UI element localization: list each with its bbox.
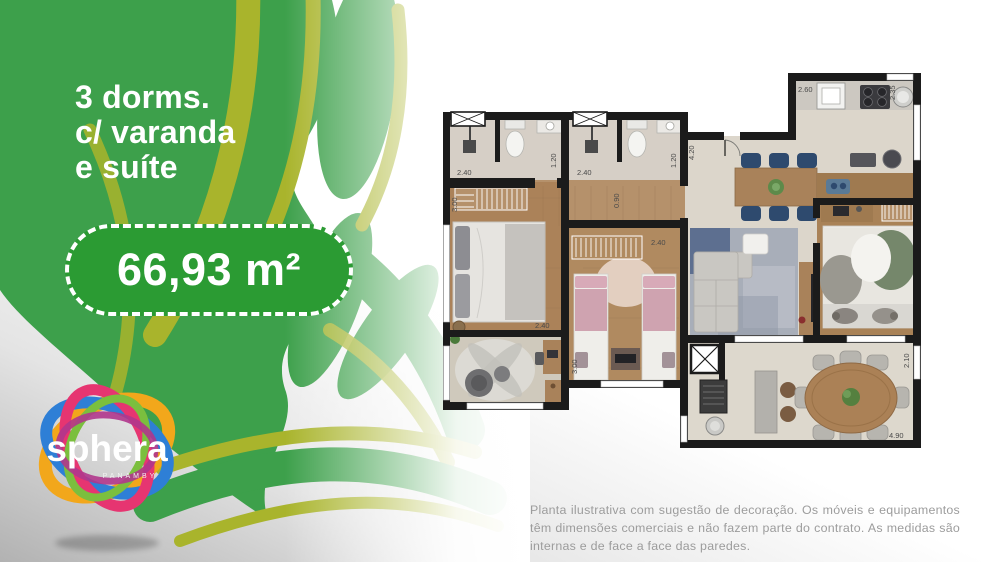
headline-line-2: c/ varanda [75, 115, 235, 150]
closet-icon [572, 236, 642, 259]
dim-label: 4.90 [889, 431, 904, 440]
living-room [690, 228, 815, 335]
suite-bedroom [820, 201, 916, 328]
window-icon [887, 74, 913, 80]
single-bed-icon [642, 274, 676, 380]
dim-label: 2.40 [457, 168, 472, 177]
stove-icon [860, 85, 890, 109]
dim-label: 2.10 [902, 353, 911, 368]
disclaimer: Planta ilustrativa com sugestão de decor… [530, 501, 960, 555]
service-door-icon [681, 416, 687, 442]
dim-label: 1.20 [549, 153, 558, 168]
counter-sink-icon [826, 179, 850, 194]
grill-icon [700, 380, 727, 413]
window-icon [914, 346, 920, 379]
disclaimer-line-2: têm dimensões comerciais e não fazem par… [530, 519, 960, 537]
logo-subtitle: PANAMBY [103, 473, 158, 480]
vase-icon [799, 317, 806, 324]
window-icon [914, 105, 920, 160]
dim-label: 3.00 [450, 197, 459, 212]
island-icon [755, 371, 777, 433]
shower-icon [585, 140, 598, 153]
dim-label: 1.20 [669, 153, 678, 168]
dim-label: 0.90 [612, 193, 621, 208]
logo-wordmark: sphera [46, 428, 168, 469]
dim-label: 3.00 [570, 359, 579, 374]
dim-label: 2.40 [651, 238, 666, 247]
area-value: 66,93 m² [117, 244, 301, 296]
flyer: 3 dorms. c/ varanda e suíte 66,93 m² sph… [0, 0, 1000, 562]
pot-icon [883, 150, 901, 168]
stool-icon [780, 382, 796, 398]
coffee-table-icon [743, 234, 768, 254]
dim-label: 4.20 [687, 145, 696, 160]
disclaimer-line-3: internas e de face a face das paredes. [530, 537, 960, 555]
window-icon [467, 403, 543, 409]
dim-label: 2.40 [577, 168, 592, 177]
single-bed-icon [574, 274, 608, 380]
desk-chair-icon [535, 352, 544, 365]
window-icon [601, 381, 663, 387]
headline: 3 dorms. c/ varanda e suíte [75, 80, 235, 185]
ottoman-icon [494, 366, 510, 382]
toilet-icon [506, 131, 524, 157]
toilet-icon [628, 131, 646, 157]
tv-icon [615, 354, 636, 363]
dim-label: 2.40 [535, 321, 550, 330]
sliding-door-icon [735, 336, 803, 342]
double-bed-icon [820, 226, 916, 328]
stool-icon [780, 406, 796, 422]
floor-plan: 2.40 1.20 2.40 1.20 3.00 0.90 2.40 2.40 … [443, 68, 945, 480]
cabinet-icon [545, 380, 562, 402]
logo-shadow [55, 535, 159, 551]
area-badge: 66,93 m² [65, 224, 353, 316]
window-icon [444, 225, 450, 322]
shower-icon [463, 140, 476, 153]
sphera-logo: sphera PANAMBY [22, 352, 192, 557]
sink-icon [666, 122, 674, 130]
appliance-icon [850, 153, 876, 167]
sink-icon [546, 122, 554, 130]
headline-line-1: 3 dorms. [75, 80, 235, 115]
disclaimer-line-1: Planta ilustrativa com sugestão de decor… [530, 501, 960, 519]
dim-label: 2.60 [798, 85, 813, 94]
dim-label: 2.35 [888, 85, 897, 100]
headline-line-3: e suíte [75, 150, 235, 185]
window-icon [847, 336, 905, 342]
window-icon [444, 346, 450, 400]
